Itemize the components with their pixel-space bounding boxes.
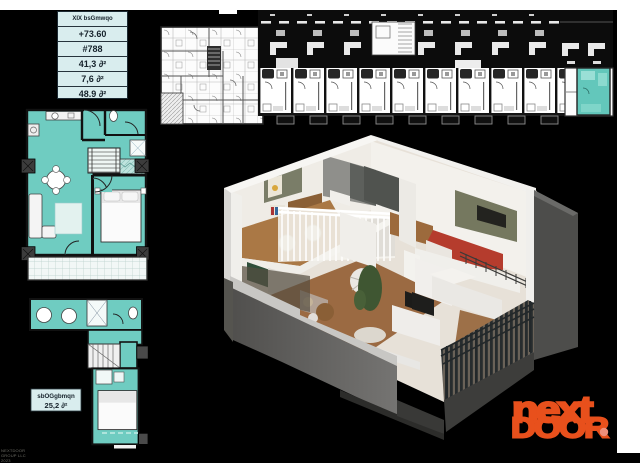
svg-text:DOOR: DOOR <box>511 412 609 443</box>
